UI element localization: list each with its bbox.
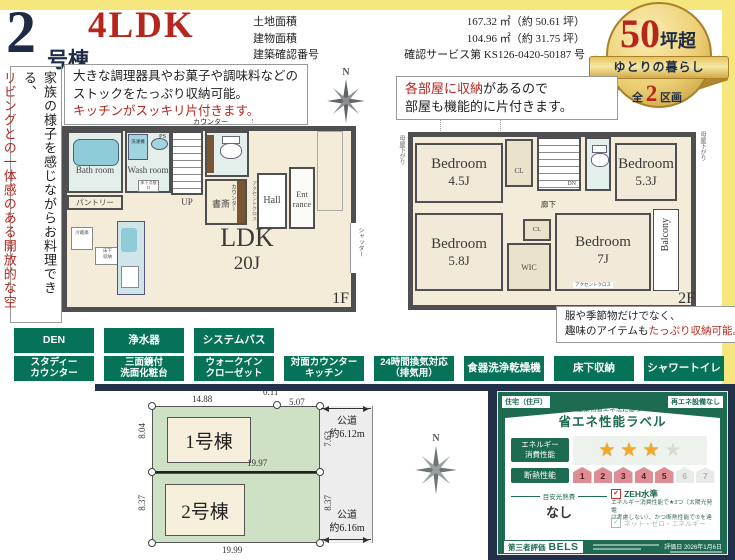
feature-button: 24時間換気対応（排気用） — [374, 356, 454, 381]
bedroom-45-size: 4.5J — [417, 173, 501, 189]
bathroom-label: Bath room — [69, 165, 121, 175]
pantry: パントリー — [67, 195, 123, 210]
entrance-porch — [317, 131, 343, 211]
stairs-down: DN — [537, 137, 581, 191]
feature-button-label: 三面鏡付 — [125, 358, 163, 369]
boundary-point — [316, 468, 324, 476]
feature-button-label: （排気用） — [390, 369, 438, 380]
area-row-label: 建築確認番号 — [253, 47, 345, 64]
area-row: 建築確認番号確認サービス第 KS126-0420-50187 号 — [253, 47, 585, 64]
boundary-point — [148, 468, 156, 476]
insulation-label: 断熱性能 — [511, 468, 569, 483]
closet-1: CL — [505, 139, 533, 187]
ldk-label: LDK 20J — [205, 223, 289, 275]
callout-storage-line2: 趣味のアイテムもたっぷり収納可能。 — [565, 325, 733, 340]
ps-label: PS — [159, 133, 166, 140]
fridge: 冷蔵庫 — [71, 227, 93, 250]
catchcopy-black: 家族の様子を感じながらお料理できる、 — [19, 71, 59, 318]
feature-button-label: DEN — [43, 334, 65, 346]
insulation-scale: 1234567 — [573, 467, 715, 483]
study: 書斎 カウンター — [205, 179, 247, 225]
energy-label-line1: エネルギー — [521, 440, 559, 450]
area-row-value: 167.32 ㎡（約 50.61 坪） — [345, 14, 585, 31]
vertical-catchcopy: 家族の様子を感じながらお料理できる、 リビングとの一体感のある開放的な空間。 — [10, 66, 62, 323]
toilet — [220, 143, 242, 159]
bedroom-53-size: 5.3J — [617, 173, 675, 189]
medal-bottom-suffix: 区画 — [660, 92, 682, 104]
road-top-label: 公道 約6.12m — [323, 415, 371, 441]
energy-label-panel: 住宅（住戸） 再エネ設備なし 建築物省エネ法に基づく 省エネ性能ラベル エネルギ… — [488, 384, 735, 560]
insulation-level: 2 — [594, 467, 613, 483]
closet-2-label: CL — [525, 221, 549, 239]
feature-button-label: 床下収納 — [573, 362, 615, 374]
cost-label-text: 目安光熱費 — [543, 491, 576, 501]
building-1: 1号棟 — [167, 417, 251, 463]
kitchen-sink — [121, 228, 137, 252]
zeh-label: ZEH水準 — [624, 488, 658, 500]
boundary-point — [273, 401, 281, 409]
entrance-line1: Ent — [291, 189, 313, 199]
dim-jog: 0.11 — [263, 387, 278, 397]
feature-button-label: 洗面化粧台 — [120, 369, 168, 380]
area-row-value: 確認サービス第 KS126-0420-50187 号 — [345, 47, 585, 64]
feature-button: 食器洗浄乾燥機 — [464, 356, 544, 381]
callout-rooms-red: 各部屋に収納 — [405, 81, 483, 96]
counter-strip — [207, 135, 214, 173]
ldk-name: LDK — [205, 223, 289, 253]
bedroom-45-name: Bedroom — [417, 155, 501, 173]
up-label: UP — [171, 197, 203, 207]
kitchen-counter — [117, 221, 145, 295]
net-zero-row: ✓ ネット・ゼロ・エネルギー — [611, 518, 706, 528]
feature-button: 浄水器 — [104, 328, 184, 353]
toilet-2f-bowl — [591, 153, 609, 167]
medal-number-suffix: 坪超 — [660, 31, 696, 51]
shutter-label: シャッター — [356, 227, 365, 257]
road-top-line1: 公道 — [323, 415, 371, 428]
road-bottom-label: 公道 約6.16m — [323, 509, 371, 535]
energy-label-line2: 消費性能 — [525, 450, 555, 460]
dim-lot2-bottom: 19.99 — [222, 545, 242, 555]
callout-rooms-line2: 部屋も機能的に片付きます。 — [405, 98, 609, 116]
closet-2: CL — [523, 219, 551, 241]
callout-storage-red: たっぷり収納可能。 — [648, 326, 735, 337]
ldk-size: 20J — [205, 253, 289, 275]
layout-type: 4LDK — [88, 4, 195, 47]
feature-button: スタディーカウンター — [14, 356, 94, 381]
medal-number: 50 — [620, 11, 660, 56]
balcony: Balcony — [653, 209, 679, 291]
callout-storage-line1: 服や季節物だけでなく、 — [565, 310, 733, 325]
bedroom-53-name: Bedroom — [617, 155, 675, 173]
fine-print-bar — [670, 551, 722, 553]
compass-n-label: N — [326, 68, 366, 78]
callout-kitchen-line1: 大きな調理器具やお菓子や調味料などの — [73, 68, 299, 86]
lot-divider — [152, 471, 320, 473]
hall-label: Hall — [259, 195, 285, 206]
building-number: 2 — [6, 2, 36, 62]
study-counter — [237, 181, 245, 223]
feature-button: 対面カウンターキッチン — [284, 356, 364, 381]
dim-lot1-bottom: 19.97 — [247, 458, 267, 468]
compass-rose-icon — [326, 78, 366, 124]
dim-lot1-top2: 5.07 — [289, 397, 305, 407]
star-icon: ★ — [643, 441, 660, 460]
zeh-checkbox: ✔ — [611, 489, 621, 499]
bedroom-53: Bedroom 5.3J — [615, 143, 677, 201]
insulation-level: 3 — [614, 467, 633, 483]
zeh-desc-line1: エネルギー消費性能で★3つ（太陽光発電 — [611, 500, 717, 515]
compass-south-section: N — [414, 434, 458, 501]
stairs-up — [171, 131, 203, 195]
floor-hatch: 床下点検口 — [138, 180, 159, 192]
dim-lot1-top: 14.88 — [192, 394, 212, 404]
counter-vertical-label: カウンター — [229, 184, 237, 212]
leader-line — [440, 119, 441, 133]
energy-label-card: 住宅（住戸） 再エネ設備なし 建築物省エネ法に基づく 省エネ性能ラベル エネルギ… — [497, 391, 728, 555]
star-icon: ★ — [665, 441, 682, 460]
callout-rooms: 各部屋に収納があるので 部屋も機能的に片付きます。 — [396, 76, 618, 120]
dim-lot2-left: 8.37 — [137, 495, 147, 511]
road-bottom-line1: 公道 — [323, 509, 371, 522]
callout-rooms-black: があるので — [483, 81, 548, 96]
insulation-level: 4 — [635, 467, 654, 483]
star-icon: ★ — [598, 441, 615, 460]
hall: Hall — [257, 173, 287, 229]
toilet-2f — [585, 137, 611, 191]
medal-bottom-number: 2 — [646, 81, 658, 106]
counter-top-label: カウンター — [193, 117, 228, 127]
boundary-point — [148, 539, 156, 547]
bedroom-7: Bedroom 7J アクセントクロス — [555, 213, 651, 291]
callout-storage-black: 趣味のアイテムも — [565, 326, 648, 337]
bathtub — [73, 139, 119, 166]
pantry-label: パントリー — [69, 197, 121, 208]
washing-machine: 洗濯機 — [128, 134, 148, 160]
floor-storage-line2: 収納 — [96, 254, 119, 260]
insulation-level: 5 — [655, 467, 674, 483]
road-width-arrow — [321, 408, 371, 409]
feature-button-label: カウンター — [30, 369, 78, 380]
feature-button-label: 浄水器 — [128, 334, 160, 346]
feature-button-label: システムバス — [203, 334, 266, 346]
bels-cert-chip: 第三者評価 BELS — [504, 541, 583, 553]
hallway-label: 廊下 — [541, 199, 556, 210]
road-width-arrow — [321, 539, 371, 540]
bedroom-7-name: Bedroom — [557, 233, 649, 251]
floor-plan-2f: Bedroom 4.5J CL DN Bedroom 5.3J 廊下 CL Be… — [408, 132, 696, 310]
feature-button-label: 対面カウンター — [291, 358, 358, 369]
entrance: Ent rance — [289, 167, 315, 229]
accent-cloth-label: アクセントクロス — [250, 181, 257, 221]
evaluation-date: 評価日 2026年1月6日 — [664, 542, 722, 551]
stars-row: ★★★★ — [573, 436, 707, 465]
feature-button: DEN — [14, 328, 94, 353]
entrance-label: Ent rance — [291, 189, 313, 209]
stove — [121, 266, 139, 288]
compass-rose-icon — [414, 444, 458, 496]
balcony-label: Balcony — [660, 218, 671, 251]
insulation-level: 1 — [573, 467, 592, 483]
zeh-row: ✔ ZEH水準 — [611, 488, 658, 500]
bedroom-45: Bedroom 4.5J — [415, 143, 503, 203]
area-row: 建物面積104.96 ㎡（約 31.75 坪） — [253, 31, 585, 48]
washroom-label: Wash room — [127, 165, 169, 175]
eaves-left-label: 母屋下がり — [397, 135, 406, 165]
label-title: 省エネ性能ラベル — [505, 411, 720, 430]
feature-row-2: スタディーカウンター三面鏡付洗面化粧台ウォークインクローゼット対面カウンターキッ… — [14, 356, 724, 381]
wic-label: WIC — [509, 263, 549, 272]
feature-button: シャワートイレ — [644, 356, 724, 381]
feature-button-label: スタディー — [31, 358, 78, 369]
area-row-label: 建物面積 — [253, 31, 345, 48]
compass-n-label: N — [414, 434, 458, 444]
flyer: 2 号棟 4LDK 土地面積167.32 ㎡（約 50.61 坪）建物面積104… — [0, 0, 735, 560]
bathroom: Bath room — [67, 131, 123, 193]
road-top-line2: 約6.12m — [323, 428, 371, 441]
cost-value: なし — [511, 502, 607, 521]
floor-plan-1f: Bath room 洗濯機 Wash room 床下点検口 パントリー PS U… — [62, 126, 356, 312]
dn-label: DN — [566, 181, 577, 187]
area-row-label: 土地面積 — [253, 14, 345, 31]
feature-button: 三面鏡付洗面化粧台 — [104, 356, 184, 381]
eaves-right-label: 母屋下がり — [698, 131, 707, 161]
closet-1-label: CL — [507, 167, 531, 175]
bedroom-7-size: 7J — [557, 251, 649, 267]
callout-kitchen: 大きな調理器具やお菓子や調味料などの ストックをたっぷり収納可能。 キッチンがス… — [64, 64, 308, 125]
fine-print-bar — [593, 544, 659, 546]
fine-print-bar — [593, 548, 641, 550]
bedroom-58-name: Bedroom — [417, 235, 501, 253]
callout-storage: 服や季節物だけでなく、 趣味のアイテムもたっぷり収納可能。 — [556, 306, 735, 343]
insulation-level: 6 — [676, 467, 695, 483]
net-zero-checkbox: ✓ — [611, 518, 621, 528]
bedroom-58-size: 5.8J — [417, 253, 501, 269]
feature-button-label: クローゼット — [205, 369, 262, 380]
leader-line — [500, 119, 501, 133]
area-table: 土地面積167.32 ㎡（約 50.61 坪）建物面積104.96 ㎡（約 31… — [253, 14, 585, 64]
compass-north: N — [326, 68, 366, 129]
feature-row-1: DEN浄水器システムバス — [14, 328, 274, 353]
callout-rooms-line1: 各部屋に収納があるので — [405, 80, 609, 98]
feature-button: システムバス — [194, 328, 274, 353]
road-bottom-line2: 約6.16m — [323, 522, 371, 535]
feature-button-label: シャワートイレ — [647, 362, 721, 374]
callout-kitchen-line3: キッチンがスッキリ片付きます。 — [73, 103, 299, 121]
cert-name: BELS — [549, 541, 579, 553]
medal-bottom-prefix: 全 — [632, 92, 643, 104]
toilet-tank — [222, 136, 240, 144]
medal-bottom-text: 全 2 区画 — [606, 81, 708, 107]
floor-1f-tag: 1F — [332, 290, 349, 308]
feature-button: 床下収納 — [554, 356, 634, 381]
toilet-room — [205, 131, 249, 177]
walk-in-closet: WIC — [507, 243, 551, 291]
feature-button-label: ウォークイン — [205, 358, 262, 369]
net-zero-label: ネット・ゼロ・エネルギー — [624, 518, 706, 528]
feature-button-label: 24時間換気対応 — [380, 358, 448, 369]
feature-button-label: キッチン — [305, 369, 343, 380]
cost-label: 目安光熱費 — [511, 491, 607, 501]
medal-headline: 50坪超 — [593, 14, 723, 54]
washroom: 洗濯機 Wash room 床下点検口 — [125, 131, 171, 193]
dim-lot1-left: 8.04 — [137, 423, 147, 439]
entrance-line2: rance — [291, 199, 313, 209]
boundary-point — [148, 402, 156, 410]
catchcopy-red: リビングとの一体感のある開放的な空間。 — [0, 71, 19, 318]
bedroom-58: Bedroom 5.8J — [415, 213, 503, 291]
feature-button-label: 食器洗浄乾燥機 — [467, 362, 541, 374]
feature-button: ウォークインクローゼット — [194, 356, 274, 381]
insulation-level: 7 — [696, 467, 715, 483]
callout-kitchen-line2: ストックをたっぷり収納可能。 — [73, 86, 299, 104]
building-2: 2号棟 — [165, 484, 245, 536]
area-row-value: 104.96 ㎡（約 31.75 坪） — [345, 31, 585, 48]
accent-cloth-2f-label: アクセントクロス — [573, 282, 613, 288]
cert-label: 第三者評価 — [508, 542, 546, 553]
energy-performance-label: エネルギー 消費性能 — [511, 438, 569, 462]
area-row: 土地面積167.32 ㎡（約 50.61 坪） — [253, 14, 585, 31]
star-icon: ★ — [620, 441, 637, 460]
toilet-2f-tank — [592, 145, 607, 153]
